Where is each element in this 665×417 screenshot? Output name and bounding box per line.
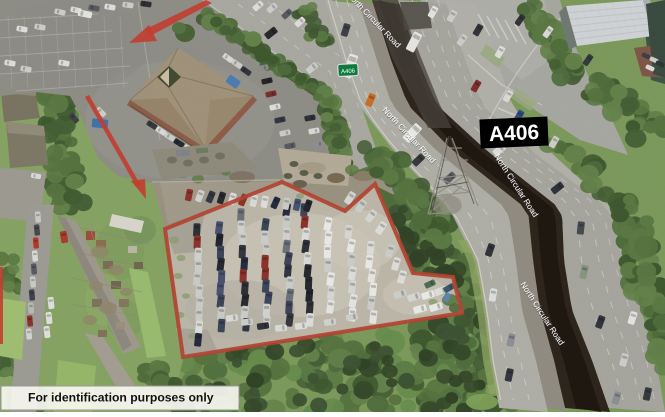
svg-text:A406: A406 [488,121,539,146]
svg-text:For identification purposes on: For identification purposes only [28,391,214,405]
svg-text:A406: A406 [341,69,356,76]
